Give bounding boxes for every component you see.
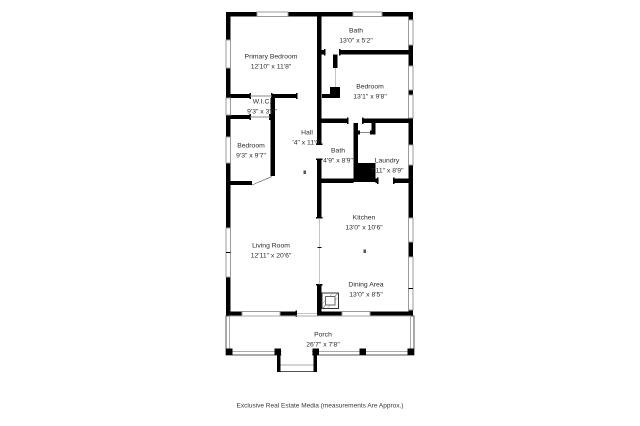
wall-segment: [409, 12, 414, 20]
wall-segment: [354, 123, 359, 163]
floor-plan-canvas: [0, 0, 640, 426]
room-label-bedroom-left: Bedroom 9'3" x 9'7": [236, 141, 266, 160]
room-label-laundry: Laundry 7'11" x 8'9": [371, 156, 404, 175]
room-dims: 13'1" x 9'8": [353, 92, 387, 102]
porch-step-opening: [282, 350, 313, 356]
room-name: W.I.C.: [247, 97, 277, 107]
room-name: Hall: [292, 128, 321, 138]
room-label-living-room: Living Room 12'11" x 20'6": [251, 241, 292, 260]
wall-segment: [370, 131, 376, 135]
window-icon: [409, 257, 414, 310]
room-dims: 26'7" x 7'8": [306, 340, 340, 350]
window-icon: [409, 218, 414, 242]
window-mullion: [226, 252, 231, 253]
wall-segment: [226, 181, 252, 185]
wall-segment: [317, 159, 322, 218]
window-icon: [226, 137, 231, 163]
room-name: Dining Area: [348, 280, 383, 290]
window-icon: [257, 12, 288, 17]
room-name: Laundry: [371, 156, 404, 166]
window-icon: [409, 145, 414, 165]
room-dims: 13'0" x 10'6": [345, 223, 382, 233]
step-rail: [277, 352, 281, 372]
room-label-wic: W.I.C. 9'3" x 3'0": [247, 97, 277, 116]
porch-post: [408, 349, 415, 356]
door-tick: [347, 118, 349, 125]
small-mark: [304, 171, 307, 175]
window-icon: [409, 66, 414, 90]
door-tick: [362, 118, 364, 125]
wall-segment: [322, 119, 349, 124]
room-name: Bedroom: [353, 82, 387, 92]
wall-segment: [358, 131, 360, 135]
room-name: Kitchen: [345, 213, 382, 223]
door-tick: [296, 93, 298, 99]
room-dims: 4'9" x 8'9": [323, 156, 353, 166]
wall-segment: [409, 242, 414, 257]
window-icon: [242, 312, 280, 317]
room-dims: 13'0" x 5'2": [339, 36, 373, 46]
wall-segment: [362, 119, 413, 124]
room-dims: 9'3" x 9'7": [236, 151, 266, 161]
room-label-kitchen: Kitchen 13'0" x 10'6": [345, 213, 382, 232]
room-name: Bedroom: [236, 141, 266, 151]
window-mullion: [409, 288, 414, 289]
wall-segment: [370, 312, 413, 317]
wall-segment: [226, 12, 231, 40]
room-dims: 7'11" x 8'9": [371, 166, 404, 176]
window-icon: [353, 12, 382, 17]
door-tick: [324, 49, 326, 56]
window-icon: [409, 20, 414, 45]
room-name: Bath: [323, 146, 353, 156]
room-label-hall: Hall '4" x 11'0": [292, 128, 321, 147]
wall-segment: [409, 165, 414, 218]
wall-segment: [226, 12, 257, 17]
wall-segment: [226, 68, 231, 98]
wall-segment: [333, 55, 338, 69]
window-icon: [342, 312, 370, 317]
room-dims: '4" x 11'0": [292, 138, 321, 148]
wall-segment: [317, 12, 322, 144]
footer-credit: Exclusive Real Estate Media (measurement…: [237, 403, 404, 410]
room-name: Living Room: [251, 241, 292, 251]
angled-door-leaf: [252, 177, 272, 186]
small-mark: [364, 250, 367, 254]
window-icon: [409, 95, 414, 118]
room-label-bedroom-right: Bedroom 13'1" x 9'8": [353, 82, 387, 101]
step-rail: [314, 352, 318, 372]
wall-segment: [409, 90, 414, 95]
wall-segment: [317, 179, 354, 184]
wall-segment: [226, 312, 242, 317]
wall-segment: [226, 163, 231, 228]
opening-mid-tick: [318, 247, 322, 248]
room-dims: 12'11" x 20'6": [251, 251, 292, 261]
door-tick: [377, 178, 379, 185]
wall-segment: [280, 312, 297, 317]
wall-segment: [393, 179, 409, 184]
door-tick: [339, 49, 341, 56]
wall-segment: [382, 12, 413, 17]
room-label-primary-bedroom: Primary Bedroom 12'10" x 11'8": [245, 52, 298, 71]
window-icon: [226, 98, 231, 115]
room-label-porch: Porch 26'7" x 7'8": [306, 330, 340, 349]
room-label-bath-middle: Bath 4'9" x 8'9": [323, 146, 353, 165]
room-dims: 12'10" x 11'8": [245, 62, 298, 72]
window-icon: [226, 40, 231, 68]
wall-segment: [339, 50, 413, 55]
wall-segment: [330, 87, 340, 98]
door-tick: [316, 159, 323, 161]
room-dims: 9'3" x 3'0": [247, 107, 277, 117]
fireplace-icon: [322, 293, 339, 309]
wall-segment: [226, 277, 231, 316]
wall-segment: [409, 45, 414, 66]
room-label-bath-top: Bath 13'0" x 5'2": [339, 26, 373, 45]
room-name: Primary Bedroom: [245, 52, 298, 62]
porch-post: [226, 349, 233, 356]
floor-plan: Bath 13'0" x 5'2" Primary Bedroom 12'10"…: [0, 0, 640, 426]
door-tick: [393, 178, 395, 185]
porch-post: [360, 349, 367, 356]
fireplace-inner: [326, 297, 336, 306]
room-label-dining-area: Dining Area 13'0" x 8'5": [348, 280, 383, 299]
room-name: Bath: [339, 26, 373, 36]
wall-segment: [317, 285, 322, 313]
room-dims: 13'0" x 8'5": [348, 290, 383, 300]
room-name: Porch: [306, 330, 340, 340]
